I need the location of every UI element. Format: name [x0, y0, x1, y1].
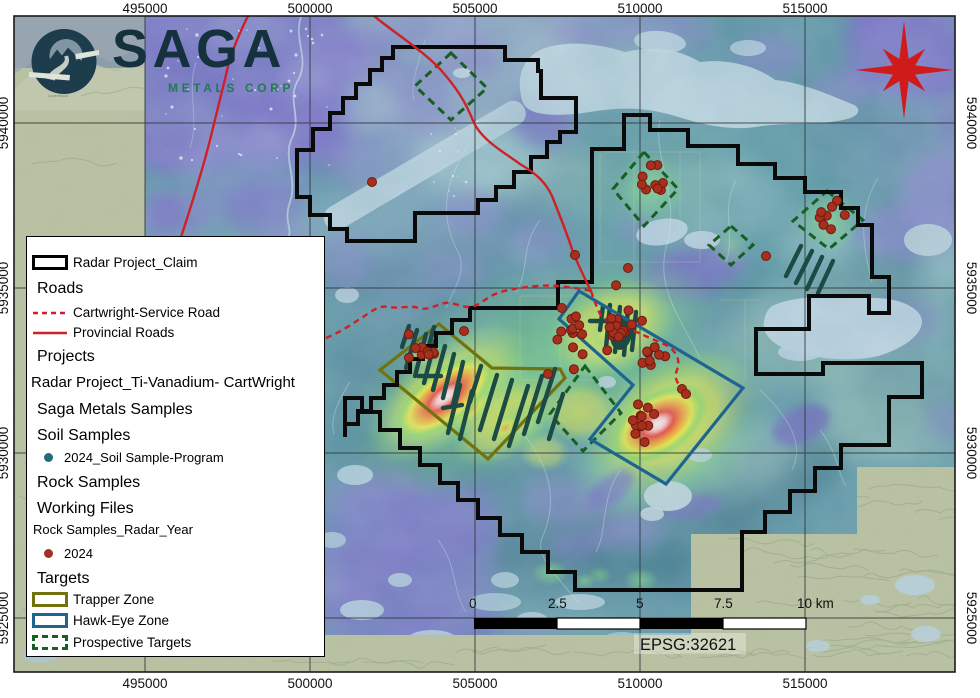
- svg-text:495000: 495000: [122, 1, 167, 16]
- svg-text:5940000: 5940000: [964, 97, 979, 150]
- svg-text:5935000: 5935000: [0, 262, 11, 315]
- svg-text:495000: 495000: [122, 676, 167, 691]
- svg-text:5: 5: [636, 596, 644, 611]
- svg-text:SAGA: SAGA: [112, 19, 286, 79]
- svg-text:5925000: 5925000: [0, 592, 11, 645]
- svg-text:7.5: 7.5: [714, 596, 733, 611]
- svg-text:La peninsula: La peninsula: [48, 94, 68, 98]
- svg-text:2.5: 2.5: [548, 596, 567, 611]
- svg-text:505000: 505000: [452, 1, 497, 16]
- svg-text:5925000: 5925000: [964, 592, 979, 645]
- svg-text:515000: 515000: [782, 676, 827, 691]
- svg-text:5930000: 5930000: [964, 427, 979, 480]
- svg-text:EPSG:32621: EPSG:32621: [640, 636, 736, 654]
- svg-text:5930000: 5930000: [0, 427, 11, 480]
- svg-text:500000: 500000: [287, 676, 332, 691]
- svg-text:515000: 515000: [782, 1, 827, 16]
- svg-text:5940000: 5940000: [0, 97, 11, 150]
- svg-text:METALS CORP: METALS CORP: [168, 81, 294, 95]
- svg-text:500000: 500000: [287, 1, 332, 16]
- svg-text:10 km: 10 km: [797, 596, 834, 611]
- svg-text:505000: 505000: [452, 676, 497, 691]
- svg-text:510000: 510000: [617, 676, 662, 691]
- svg-text:510000: 510000: [617, 1, 662, 16]
- svg-text:0: 0: [469, 596, 477, 611]
- svg-text:5935000: 5935000: [964, 262, 979, 315]
